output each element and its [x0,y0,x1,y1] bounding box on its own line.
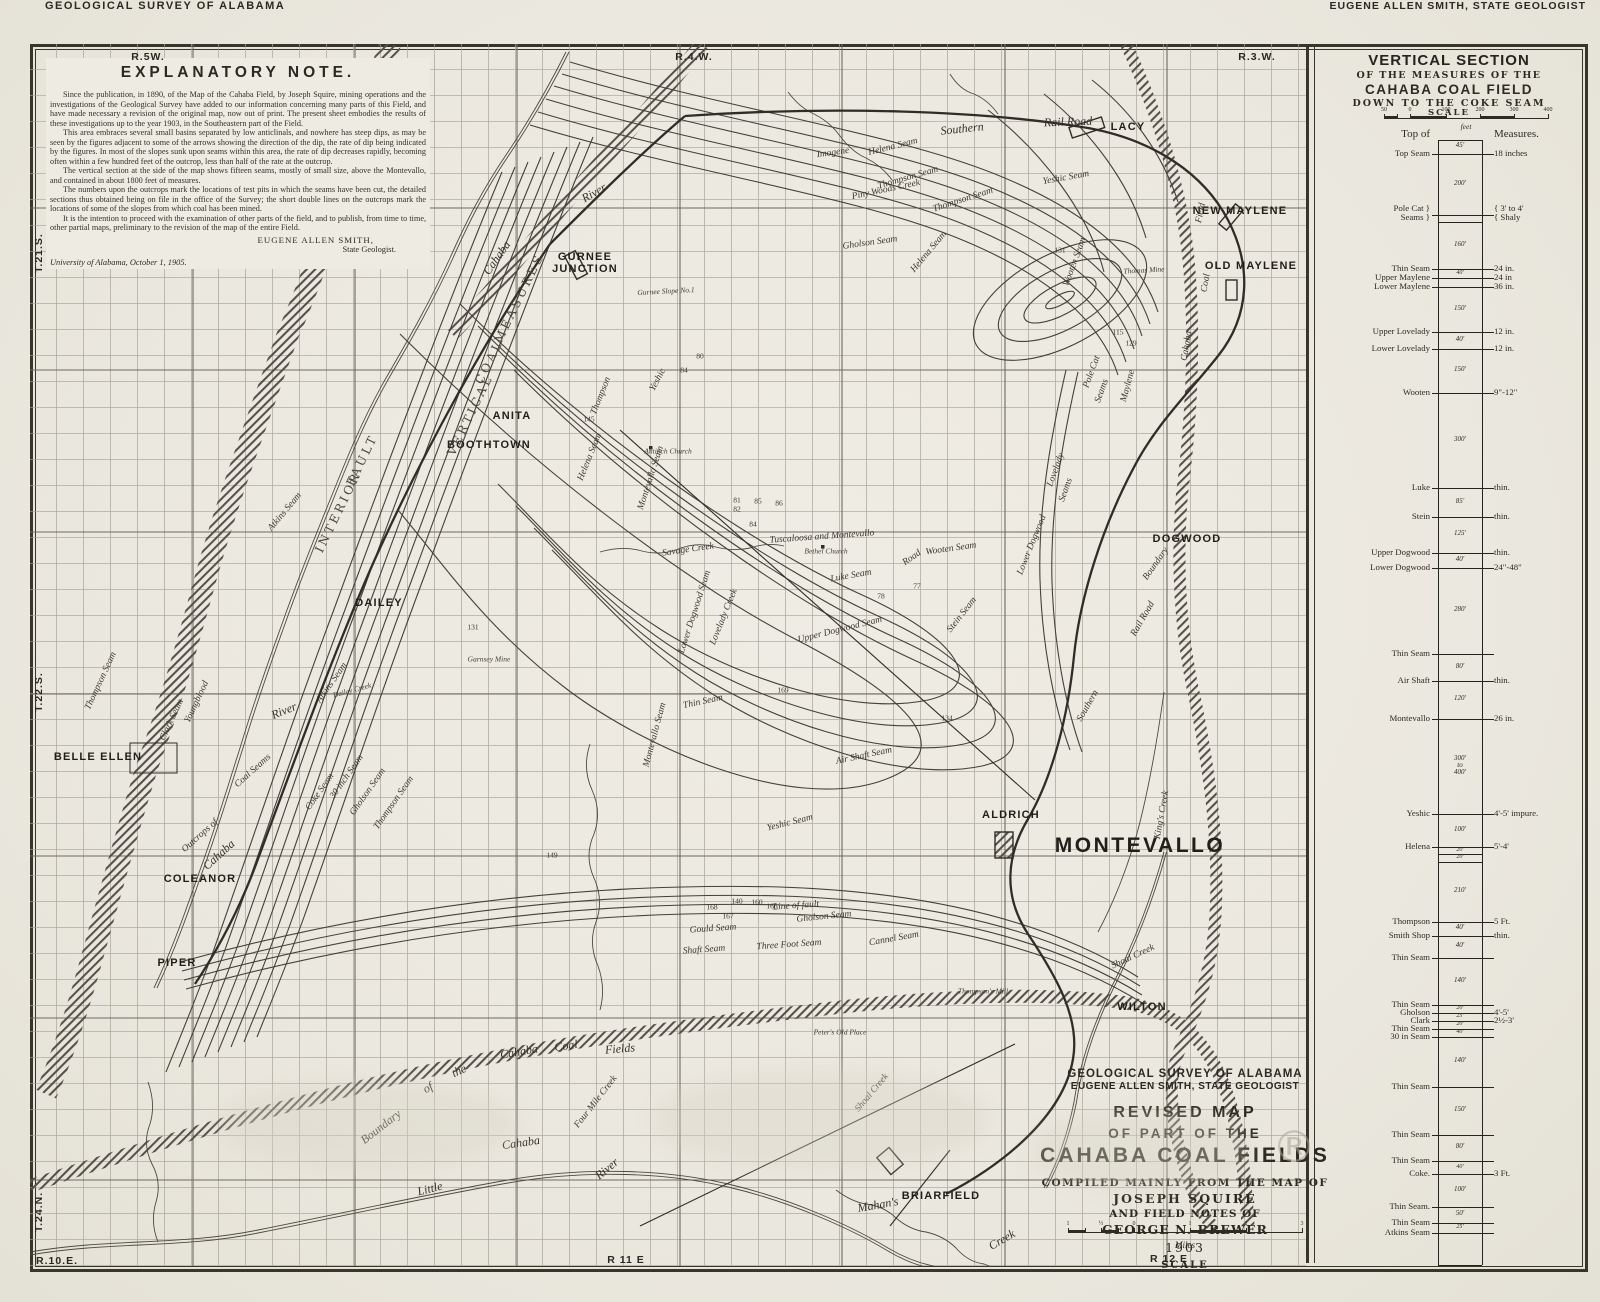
seam-measure: { Shaly [1494,212,1520,222]
interval-thickness: 80' [1438,663,1482,670]
interval-thickness: 280' [1438,606,1482,613]
seam-measure: 9"-12" [1494,387,1517,397]
map-feature-label: Helena Seam [867,136,918,158]
interval-thickness: 300' [1438,436,1482,443]
map-feature-label: Gholson Seam [796,909,852,925]
seam-line [1432,287,1494,288]
interval-thickness: 25' [1438,1013,1482,1019]
town-label: DOGWOOD [1153,533,1222,545]
watermark-ghost [220,1080,520,1170]
interval-thickness: 20' [1438,1021,1482,1027]
watermark-ghost [1030,1110,1250,1190]
town-label: DAILEY [355,597,403,609]
map-feature-label: River [269,699,299,723]
seam-name: Thin Seam [1312,1081,1430,1091]
watermark-ghost [650,1070,990,1170]
watermark-symbol: ® [1272,1122,1316,1173]
map-feature-label: Southern [1075,689,1101,724]
seam-measure: 12 in. [1494,326,1514,336]
township-range-label: R.4.W. [675,51,713,63]
map-feature-label: Yeshic Seam [1042,169,1090,187]
seam-name: Thin Seam [1312,952,1430,962]
map-feature-label: Coal [553,1037,578,1055]
map-feature-label: Helena Seam [909,229,949,274]
map-feature-label: Seams [1057,477,1075,503]
map-feature-label: Air Shaft Seam [835,745,893,767]
test-pit-number: 81 [733,496,741,505]
map-feature-label: King's Creek [1153,790,1171,840]
interval-thickness: 125' [1438,530,1482,537]
map-feature-label: Southern [940,119,985,138]
seam-line [1432,393,1494,394]
map-feature-label: Thompson Seam [83,651,118,712]
interval-thickness: 100' [1438,1186,1482,1193]
map-feature-label: Cahaba [200,837,238,874]
test-pit-number: 131 [467,623,478,632]
map-feature-label: Fields [604,1040,635,1058]
title-block-line: AND FIELD NOTES OF [1020,1208,1350,1220]
seam-measure: 12 in. [1494,343,1514,353]
map-feature-label: Field [1194,202,1208,224]
column-cap [1438,1265,1482,1266]
map-feature-label: Stein Seam [945,595,979,634]
interval-thickness: 20' [1438,847,1482,853]
seam-name: Thompson [1312,916,1430,926]
test-pit-number: 145 [583,415,594,424]
town-label: WILTON [1117,1001,1167,1013]
seam-measure: 36 in. [1494,281,1514,291]
map-feature-label: Wooten Seam [925,540,977,557]
map-feature-label: Thompson Seam [372,775,416,832]
interval-thickness: 150' [1438,1106,1482,1113]
title-block-line: GEOLOGICAL SURVEY OF ALABAMA [1020,1068,1350,1080]
seam-line [1432,814,1494,815]
seam-measure: thin. [1494,930,1510,940]
map-feature-label: FAULT [343,432,380,489]
interval-thickness: 20' [1438,854,1482,860]
map-feature-label: Boundary [1141,546,1171,582]
map-feature-label: Outcrops of [180,817,220,854]
seam-line [1432,1174,1494,1175]
seam-name: Atkins Seam [1312,1227,1430,1237]
map-feature-label: Thomas Mine [1123,264,1164,275]
map-feature-label: Thompson Seam [877,165,940,192]
seam-name: Smith Shop [1312,930,1430,940]
seam-name: Coke. [1312,1168,1430,1178]
seam-name: Lower Lovelady [1312,343,1430,353]
map-feature-label: Rail Road [1044,114,1093,131]
test-pit-number: 84 [680,366,688,375]
map-feature-label: Luke Seam [830,567,873,584]
map-feature-label: Gholson Seam [348,767,388,818]
map-feature-label: 30 inch Seam [328,753,366,801]
seam-line [1432,719,1494,720]
title-block-line: EUGENE ALLEN SMITH, STATE GEOLOGIST [1020,1081,1350,1092]
interval-thickness: 45' [1438,142,1482,149]
map-feature-label: Savage Creek [661,541,714,558]
map-feature-label: Yeshic Seam [766,812,814,833]
interval-thickness: 40' [1438,924,1482,931]
map-feature-label: Imogene [816,146,850,160]
map-feature-label: Upper Dogwood Seam [797,615,883,646]
map-feature-label: Maylene [1119,369,1137,403]
township-range-label: R 11 E [607,1254,645,1266]
interval-thickness: 40' [1438,1164,1482,1170]
seam-name: Thin Seam [1312,1155,1430,1165]
map-feature-label: Cahaba [480,238,514,278]
interval-thickness: 80' [1438,1143,1482,1150]
map-feature-label: COAL [472,338,505,387]
map-feature-label: Cannel Seam [868,930,919,949]
map-feature-label: Montevallo Seam [636,445,666,511]
seam-measure: thin. [1494,675,1510,685]
seam-name: Wooten [1312,387,1430,397]
interval-thickness: 50' [1438,1210,1482,1217]
map-feature-label: Lower Dogwood Seam [677,569,713,654]
map-feature-label: River [592,1155,622,1183]
map-feature-label: Peter's Old Place [814,1028,867,1037]
seam-measure: thin. [1494,511,1510,521]
seam-line [1432,1087,1494,1088]
interval-thickness: 20' [1438,1005,1482,1011]
test-pit-number: 160 [751,898,762,907]
seam-line [1432,553,1494,554]
test-pit-number: 129 [1125,339,1136,348]
map-feature-label: Thompson Seam [932,186,995,215]
township-range-label: T.24.N. [33,1192,45,1232]
map-feature-label: Coal [1199,273,1212,293]
map-feature-label: INTERIOR [312,469,363,555]
map-feature-label: Thompson [589,376,613,416]
test-pit-number: 84 [749,520,757,529]
interval-thickness: 140' [1438,1057,1482,1064]
interval-thickness: 40' [1438,270,1482,276]
town-label: BOOTHTOWN [447,439,531,451]
map-feature-label: Thin Seam [682,693,724,711]
interval-thickness: 150' [1438,366,1482,373]
seam-name: Upper Dogwood [1312,547,1430,557]
seam-name: Thin Seam [1312,1217,1430,1227]
test-pit-number: 80 [696,352,704,361]
interval-thickness: 25' [1438,1224,1482,1230]
interval-thickness: 40' [1438,336,1482,343]
township-range-label: R.10.E. [36,1255,78,1267]
map-feature-label: Mahan's [856,1194,899,1216]
map-feature-label: Dailey Creek [332,681,372,700]
town-label: NEW MAYLENE [1193,205,1288,217]
test-pit-number: 169 [777,686,788,695]
seam-line [1438,862,1482,863]
seam-name: Yeshic [1312,808,1430,818]
map-feature-label: Four Mile Creek [573,1074,620,1130]
town-label: LACY [1111,121,1146,133]
interval-thickness: 120' [1438,695,1482,702]
seam-line [1432,1207,1494,1208]
test-pit-number: 77 [913,582,921,591]
column-edge [1482,140,1483,1265]
map-feature-label: Atkins Seam [315,661,350,705]
seam-measure: 24"-48" [1494,562,1522,572]
town-label: OLD MAYLENE [1205,260,1297,272]
map-feature-label: Shaft Seam [682,944,725,957]
map-feature-label: Lovelady Creek [708,588,740,647]
map-feature-label: Cahaba [1179,330,1194,361]
map-scale-bar: 1½0123 [1068,1226,1302,1236]
interval-thickness: 150' [1438,305,1482,312]
seam-name: Lower Dogwood [1312,562,1430,572]
seam-name: Luke [1312,482,1430,492]
map-feature-label: Cahaba [499,1041,539,1062]
seam-measure: 4'-5' impure. [1494,808,1538,818]
map-feature-label: Helena Seam [576,432,604,482]
map-feature-label: Lower Dogwood [1015,514,1048,577]
seam-name: Upper Lovelady [1312,326,1430,336]
test-pit-number: 167 [722,912,733,921]
map-feature-label: the [449,1061,469,1081]
seam-line [1432,936,1494,937]
test-pit-number: 149 [546,851,557,860]
map-feature-label: Little [416,1179,444,1200]
map-feature-label: Gould Seam [689,922,736,935]
map-feature-label: Creek [986,1226,1018,1253]
test-pit-number: 134 [941,714,952,723]
map-feature-label: Atkins Seam [266,491,304,533]
map-feature-label: Coke Seam [304,772,337,813]
interval-thickness: 40' [1438,1029,1482,1035]
map-feature-label: Tuscaloosa and Montevallo [769,528,874,545]
seam-measure: 5'-4' [1494,841,1509,851]
scanned-map-page: GEOLOGICAL SURVEY OF ALABAMA EUGENE ALLE… [0,0,1600,1302]
seam-line [1432,154,1494,155]
seam-name: Thin Seam [1312,1129,1430,1139]
seam-line [1432,568,1494,569]
test-pit-number: 115 [1113,328,1124,337]
map-feature-label: River [579,180,609,206]
test-pit-number: 85 [754,497,762,506]
seam-measure: 5 Ft. [1494,916,1510,926]
test-pit-number: 78 [877,592,885,601]
test-pit-number: 82 [733,505,741,514]
seam-line [1432,349,1494,350]
map-feature-label: Coal Seams [233,752,273,790]
map-feature-label: Antioch Church [644,447,691,456]
seam-name: 30 in Seam [1312,1031,1430,1041]
interval-thickness: 300' to 400' [1438,755,1482,777]
seam-measure: 3 Ft. [1494,1168,1510,1178]
seam-line [1432,681,1494,682]
seam-name: Seams } [1312,212,1430,222]
map-feature-label: Three Foot Seam [756,938,822,953]
map-feature-label: Thompson's Mill [958,987,1008,996]
map-feature-label: Line of fault [772,899,819,912]
test-pit-number: 168 [706,903,717,912]
interval-thickness: 140' [1438,977,1482,984]
seam-measure: 18 inches [1494,148,1527,158]
map-feature-label: MEASURES [491,251,547,345]
strat-column: 45'Top Seam18 inches200'Pole Cat }Seams … [1312,44,1586,1266]
township-range-label: R.5W. [131,51,165,63]
township-range-label: T.22.S. [33,672,45,712]
map-feature-label: Piny Woods Creek [851,178,921,202]
map-feature-label: Bethel Church [804,547,847,556]
seam-line [1432,958,1494,959]
map-feature-label: Lovelady [1045,452,1066,488]
map-feature-label: Wooten Seam [1062,236,1089,287]
map-feature-label: Garnsey Mine [468,655,511,664]
seam-line [1432,517,1494,518]
interval-thickness: 210' [1438,887,1482,894]
seam-line [1432,215,1494,216]
map-feature-label: Clark Seam [158,698,186,743]
test-pit-number: 140 [731,897,742,906]
seam-name: Stein [1312,511,1430,521]
test-pit-number: 166 [766,902,777,911]
seam-line [1432,654,1494,655]
map-feature-label: Road [901,548,923,568]
seam-name: Lower Maylene [1312,281,1430,291]
interval-thickness: 40' [1438,942,1482,949]
vertical-section-panel: VERTICAL SECTION OF THE MEASURES OF THE … [1312,44,1586,1266]
map-feature-label: Youngblood [183,679,211,724]
seam-name: Thin Seam. [1312,1201,1430,1211]
town-label: BELLE ELLEN [54,751,142,763]
interval-thickness: 100' [1438,826,1482,833]
town-label: BRIARFIELD [902,1190,981,1202]
seam-line [1432,1135,1494,1136]
town-label: ALDRICH [982,809,1040,821]
seam-line [1432,488,1494,489]
map-feature-label: VERTICAL [444,372,496,458]
interval-thickness: 85' [1438,498,1482,505]
map-feature-label: Gurnee Slope No.1 [637,285,695,297]
seam-line [1432,1161,1494,1162]
town-label: COLEANOR [164,873,237,885]
test-pit-number: 131 [1054,246,1065,255]
town-label: ANITA [493,410,532,422]
interval-thickness: 40' [1438,556,1482,563]
title-block-line: JOSEPH SQUIRE [1020,1191,1350,1206]
map-feature-label: Shoal Creek [1110,943,1156,972]
seam-line [1432,1233,1494,1234]
seam-name: Air Shaft [1312,675,1430,685]
map-feature-label: Gholson Seam [842,234,898,252]
seam-name: Helena [1312,841,1430,851]
seam-line [1438,222,1482,223]
map-feature-label: Seams [1093,378,1111,404]
seam-line [1432,332,1494,333]
seam-name: Top Seam [1312,148,1430,158]
town-label: GURNEE JUNCTION [552,251,618,275]
map-feature-label: Rail Road [1129,600,1157,638]
seam-name: Montevallo [1312,713,1430,723]
seam-line [1432,1037,1494,1038]
seam-measure: thin. [1494,547,1510,557]
seam-measure: 26 in. [1494,713,1514,723]
township-range-label: T.21.S. [33,233,45,273]
map-scale-unit: Miles [1068,1240,1302,1250]
interval-thickness: 200' [1438,180,1482,187]
test-pit-number: 86 [775,499,783,508]
seam-line [1432,278,1494,279]
township-range-label: R.3.W. [1238,51,1276,63]
seam-name: Thin Seam [1312,648,1430,658]
seam-measure: thin. [1494,482,1510,492]
seam-measure: 2½-3' [1494,1015,1514,1025]
map-feature-label: Pole Cat [1082,355,1103,390]
map-scale-label: SCALE [1020,1260,1350,1271]
town-label: MONTEVALLO [1055,834,1225,858]
interval-thickness: 160' [1438,241,1482,248]
town-label: PIPER [157,957,196,969]
map-feature-label: Montevallo Seam [642,702,669,769]
map-feature-label: Yeshic [648,367,668,393]
